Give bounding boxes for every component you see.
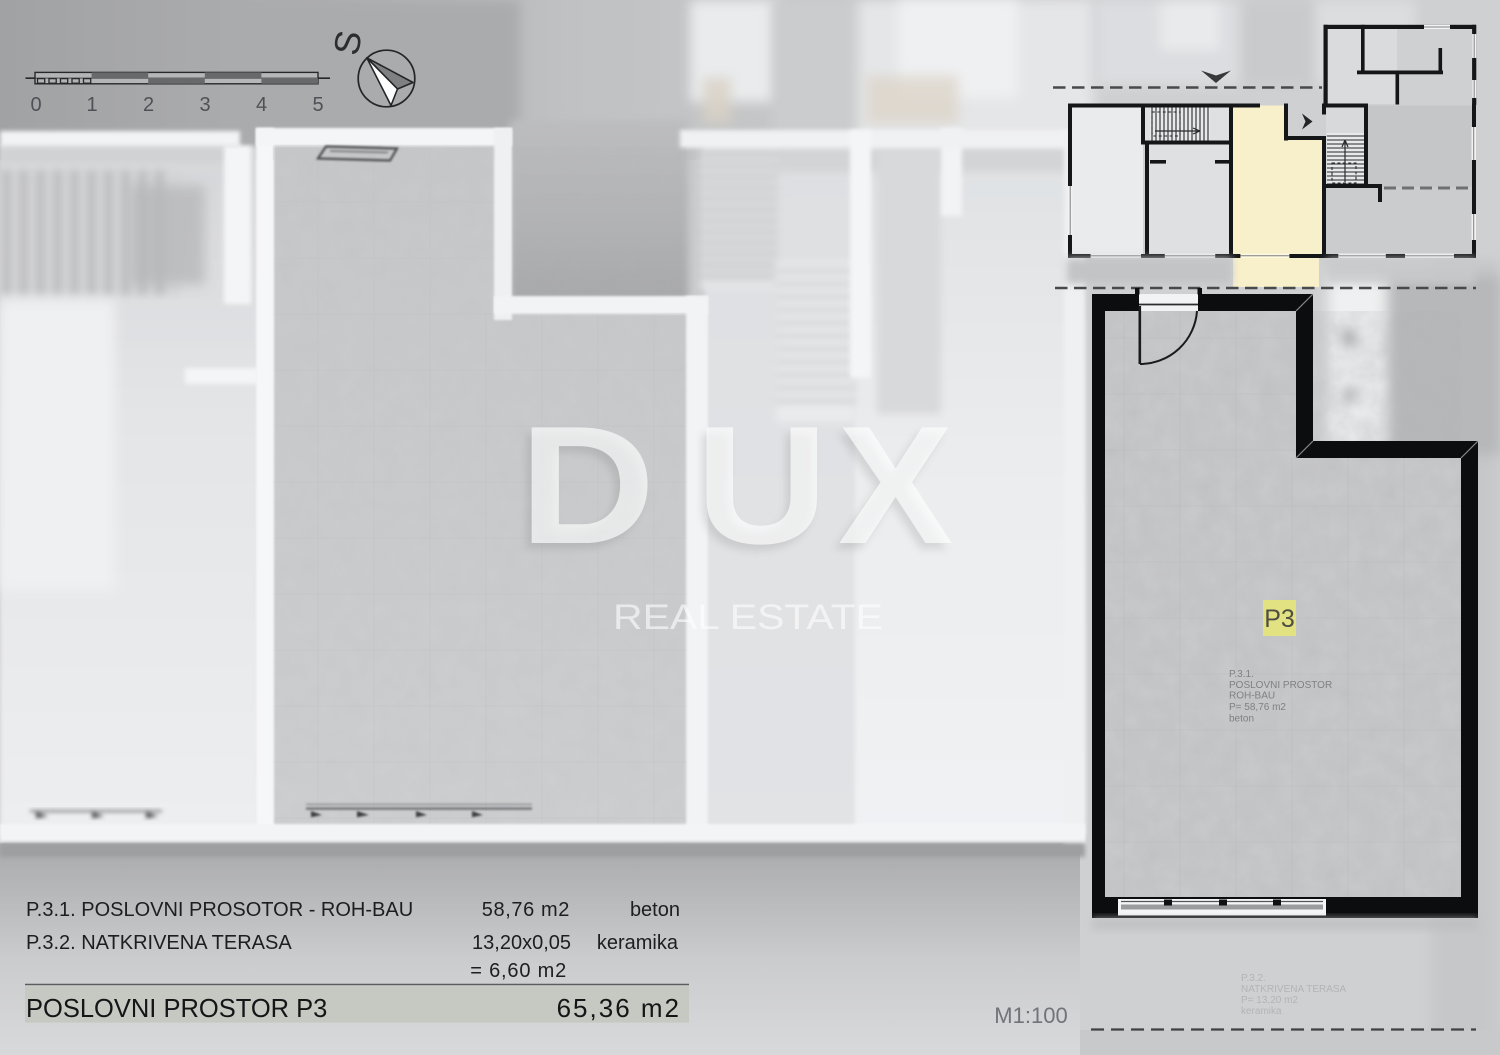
svg-text:3: 3 xyxy=(199,94,210,116)
svg-text:REAL ESTATE: REAL ESTATE xyxy=(613,598,883,637)
svg-text:POSLOVNI PROSTOR: POSLOVNI PROSTOR xyxy=(1229,680,1332,691)
svg-text:P.3.2.: P.3.2. xyxy=(1241,973,1266,984)
svg-text:13,20x0,05: 13,20x0,05 xyxy=(472,932,571,954)
svg-text:M1:100: M1:100 xyxy=(994,1003,1067,1028)
svg-text:ROH-BAU: ROH-BAU xyxy=(1229,691,1275,702)
svg-text:NATKRIVENA TERASA: NATKRIVENA TERASA xyxy=(1241,984,1347,995)
svg-text:2: 2 xyxy=(143,94,154,116)
svg-text:beton: beton xyxy=(1229,714,1254,725)
svg-text:5: 5 xyxy=(312,94,323,116)
svg-text:65,36 m2: 65,36 m2 xyxy=(557,993,681,1023)
svg-text:P.3.1.: P.3.1. xyxy=(1229,669,1254,680)
svg-text:beton: beton xyxy=(630,899,680,921)
svg-text:keramika: keramika xyxy=(597,932,679,954)
svg-text:keramika: keramika xyxy=(1241,1006,1282,1017)
svg-text:1: 1 xyxy=(86,94,97,116)
svg-text:58,76 m2: 58,76 m2 xyxy=(482,899,570,921)
svg-text:P.3.1. POSLOVNI PROSOTOR - ROH: P.3.1. POSLOVNI PROSOTOR - ROH-BAU xyxy=(26,899,413,921)
svg-text:P.3.2. NATKRIVENA TERASA: P.3.2. NATKRIVENA TERASA xyxy=(26,932,292,954)
svg-text:0: 0 xyxy=(30,94,41,116)
svg-text:X: X xyxy=(838,392,953,579)
svg-text:POSLOVNI PROSTOR P3: POSLOVNI PROSTOR P3 xyxy=(26,995,327,1023)
svg-text:= 6,60 m2: = 6,60 m2 xyxy=(470,960,567,982)
svg-text:U: U xyxy=(696,392,829,579)
svg-text:D: D xyxy=(519,391,655,579)
svg-text:P= 58,76 m2: P= 58,76 m2 xyxy=(1229,702,1286,713)
svg-text:P= 13,20 m2: P= 13,20 m2 xyxy=(1241,995,1298,1006)
svg-text:P3: P3 xyxy=(1264,605,1295,633)
svg-text:4: 4 xyxy=(256,94,267,116)
